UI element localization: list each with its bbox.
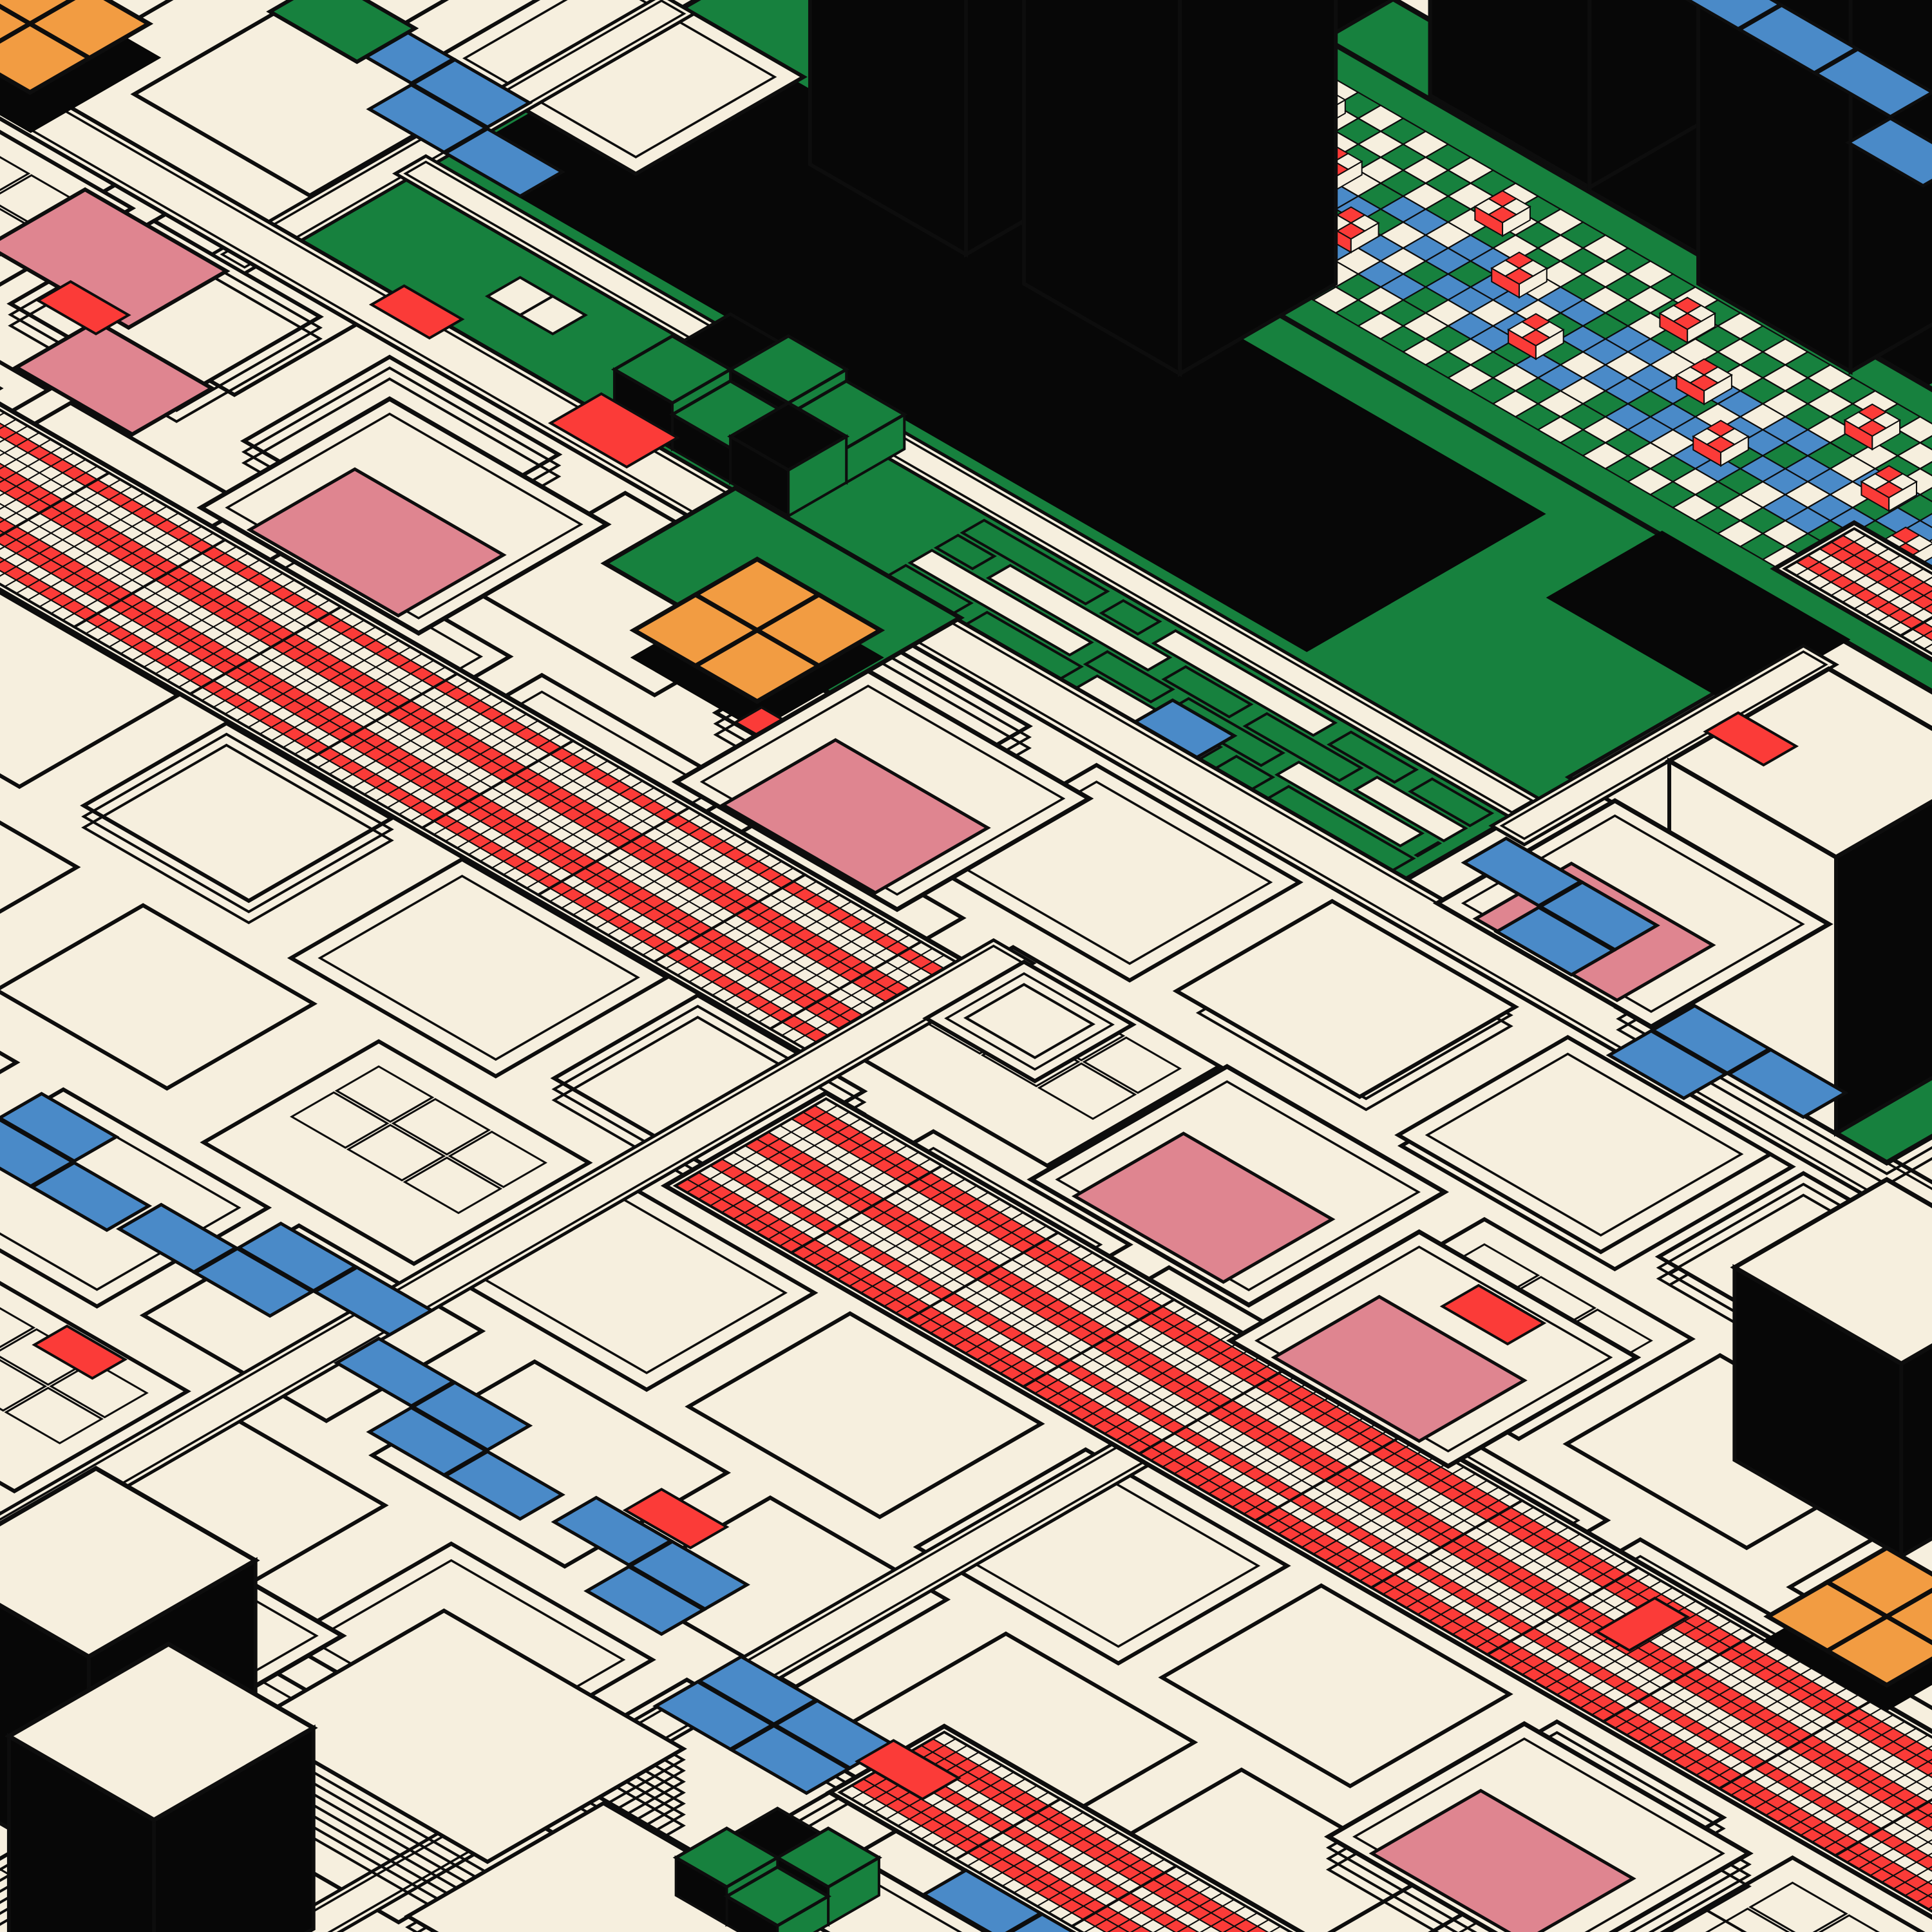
generative-artwork xyxy=(0,0,1932,1932)
artwork-canvas xyxy=(0,0,1932,1932)
